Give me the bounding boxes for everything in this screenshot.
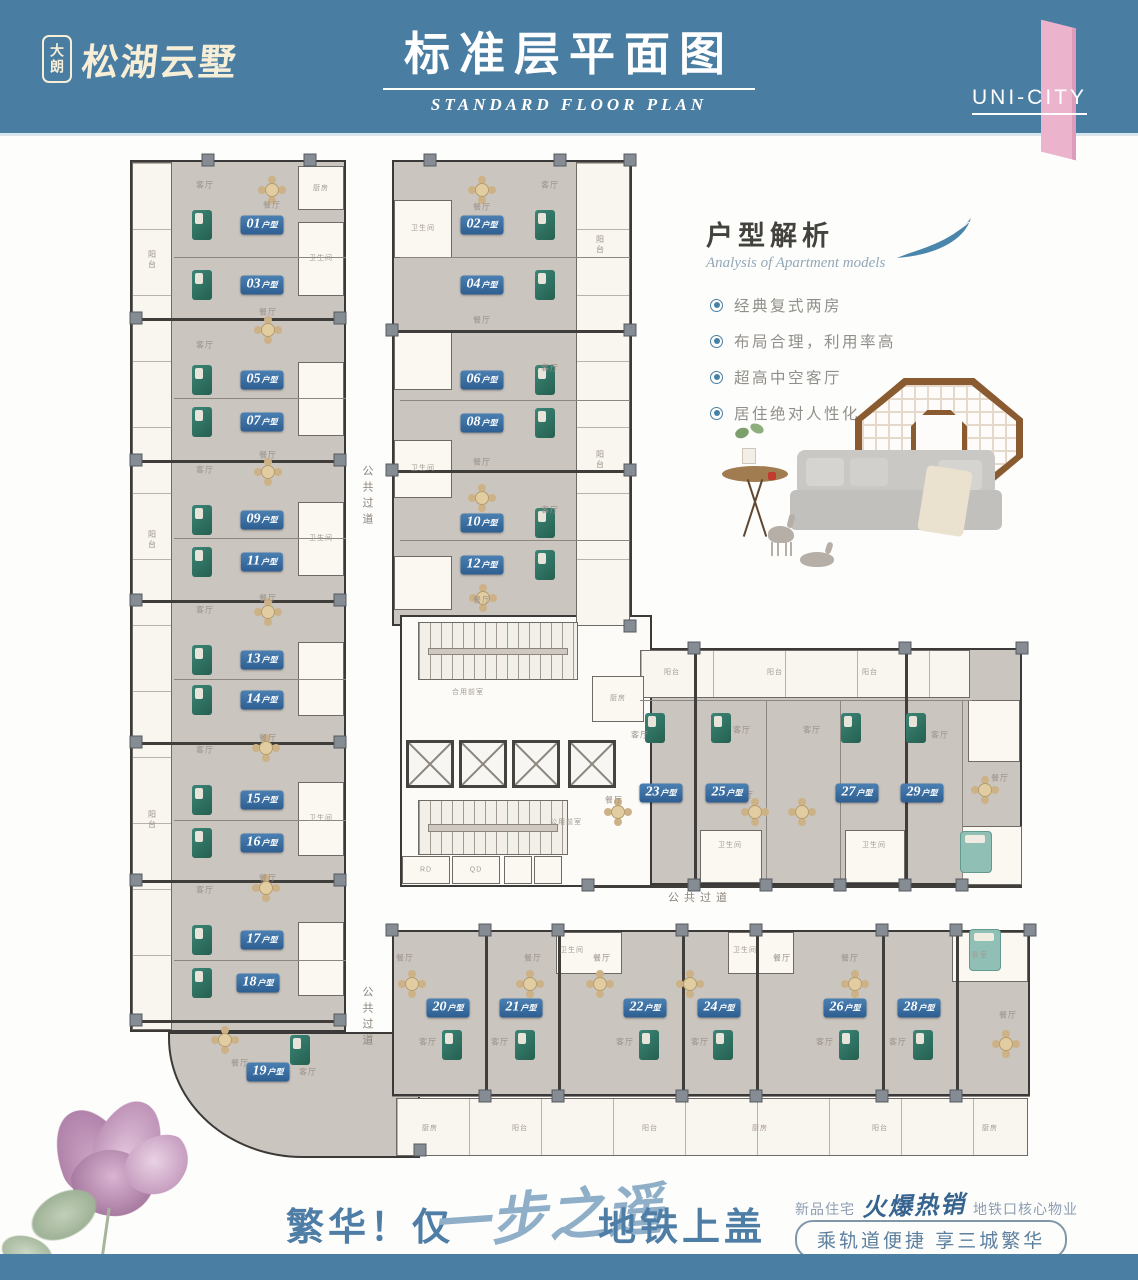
bullet-ring-icon: [710, 407, 723, 420]
wall: [174, 679, 346, 680]
elevator: [512, 740, 560, 788]
structural-pillar: [479, 924, 492, 937]
analysis-title: 户型解析: [706, 214, 885, 253]
unit-label: 16户型: [241, 834, 284, 853]
dining-table-icon: [748, 805, 762, 819]
unit-label: 13户型: [241, 651, 284, 670]
room-label: 卫生间: [309, 813, 333, 823]
dining-table-icon: [795, 805, 809, 819]
room-label: 公共过道: [668, 889, 732, 905]
unit-label: 15户型: [241, 791, 284, 810]
bullet-text: 超高中空客厅: [734, 366, 842, 388]
structural-pillar: [688, 642, 701, 655]
structural-pillar: [386, 464, 399, 477]
unit-label: 28户型: [898, 999, 941, 1018]
room-label: 客厅: [196, 745, 214, 756]
room-label: 客厅: [419, 1037, 437, 1048]
bed-icon: [960, 831, 992, 873]
room-label: 厨房: [313, 183, 329, 193]
dining-table-icon: [999, 1037, 1013, 1051]
unit-label: 05户型: [241, 371, 284, 390]
unit-label: 27户型: [836, 784, 879, 803]
room-label: 餐厅: [263, 200, 281, 211]
service-room: [534, 856, 562, 884]
stair-rail: [428, 824, 558, 831]
unit-label: 09户型: [241, 511, 284, 530]
dining-table-icon: [261, 465, 275, 479]
stair-rail: [428, 648, 567, 656]
room-label: 阳台: [872, 1123, 888, 1133]
room-label: 阳台: [767, 667, 783, 677]
room-label: 餐厅: [259, 307, 277, 318]
room-label: 客厅: [631, 730, 649, 741]
structural-pillar: [899, 642, 912, 655]
slogan-left: 繁华！仅: [286, 1196, 454, 1251]
wall: [174, 960, 346, 961]
elevator: [406, 740, 454, 788]
sofa-icon: [192, 925, 212, 955]
sofa-icon: [192, 547, 212, 577]
unit-label: 06户型: [461, 371, 504, 390]
structural-pillar: [750, 924, 763, 937]
room-label: 客厅: [196, 885, 214, 896]
sofa-icon: [192, 365, 212, 395]
structural-pillar: [424, 154, 437, 167]
promo-line: 新品住宅 火爆热销 地铁口核心物业: [795, 1186, 1078, 1221]
bullet-ring-icon: [710, 299, 723, 312]
structural-pillar: [334, 736, 347, 749]
room-label: 卫生间: [718, 840, 742, 850]
room-label: 卫生间: [560, 945, 584, 955]
wall: [694, 648, 697, 885]
room-label: 公共过道: [359, 986, 375, 1050]
room-label: 厨房: [610, 693, 626, 703]
room-label: 客厅: [816, 1037, 834, 1048]
room-label: 餐厅: [999, 1010, 1017, 1021]
wall: [174, 398, 346, 399]
structural-pillar: [130, 594, 143, 607]
room-label: 卫生间: [309, 533, 333, 543]
structural-pillar: [750, 1090, 763, 1103]
room-label: 卫生间: [411, 463, 435, 473]
room-label: 餐厅: [524, 953, 542, 964]
wall: [682, 930, 685, 1096]
structural-pillar: [624, 324, 637, 337]
sofa-icon: [535, 408, 555, 438]
dining-table-icon: [683, 977, 697, 991]
room-label: 客厅: [196, 465, 214, 476]
sofa-icon: [639, 1030, 659, 1060]
sofa-icon: [192, 505, 212, 535]
unit-label: 23户型: [640, 784, 683, 803]
room-label: 餐厅: [593, 953, 611, 964]
service-room: [700, 830, 762, 883]
room-label: 客厅: [616, 1037, 634, 1048]
room-label: 餐厅: [473, 202, 491, 213]
unit-label: 14户型: [241, 691, 284, 710]
room-label: 阳台: [595, 450, 606, 470]
room-label: 厨房: [752, 1123, 768, 1133]
structural-pillar: [624, 620, 637, 633]
structural-pillar: [334, 594, 347, 607]
room-label: 餐厅: [259, 873, 277, 884]
slogan-right: 地铁上盖: [598, 1196, 766, 1251]
structural-pillar: [130, 736, 143, 749]
unit-label: 08户型: [461, 414, 504, 433]
dining-table-icon: [848, 977, 862, 991]
room-label: 阳台: [642, 1123, 658, 1133]
room-label: 客厅: [889, 1037, 907, 1048]
sofa-icon: [906, 713, 926, 743]
unit-label: 19户型: [247, 1063, 290, 1082]
dining-table-icon: [405, 977, 419, 991]
room-label: 客厅: [299, 1067, 317, 1078]
wall: [132, 880, 346, 883]
room-label: 阳台: [147, 250, 158, 270]
room-label: 卫生间: [733, 945, 757, 955]
wall: [132, 318, 346, 321]
structural-pillar: [676, 1090, 689, 1103]
sofa-icon: [192, 270, 212, 300]
analysis-bullet: 经典复式两房: [710, 294, 976, 316]
sofa-icon: [839, 1030, 859, 1060]
staircase: [418, 800, 568, 855]
room-label: 卫生间: [411, 223, 435, 233]
structural-pillar: [130, 454, 143, 467]
structural-pillar: [1024, 924, 1037, 937]
structural-pillar: [956, 879, 969, 892]
wall: [132, 742, 346, 745]
room-label: 卧室: [972, 950, 988, 960]
structural-pillar: [334, 874, 347, 887]
bottom-bar: [0, 1254, 1138, 1280]
structural-pillar: [552, 1090, 565, 1103]
structural-pillar: [554, 154, 567, 167]
sofa-icon: [711, 713, 731, 743]
room-label: 餐厅: [773, 953, 791, 964]
analysis-subtitle: Analysis of Apartment models: [706, 255, 885, 272]
structural-pillar: [899, 879, 912, 892]
room-label: 客厅: [733, 725, 751, 736]
room-label: 客厅: [541, 180, 559, 191]
dining-table-icon: [523, 977, 537, 991]
wall: [400, 540, 630, 541]
service-room: [298, 922, 344, 996]
room-label: 客厅: [931, 730, 949, 741]
structural-pillar: [950, 1090, 963, 1103]
wall: [132, 1020, 346, 1023]
wall: [956, 930, 959, 1096]
room-label: RD: [420, 867, 432, 874]
room-label: 阳台: [595, 235, 606, 255]
sofa-icon: [535, 270, 555, 300]
room-label: 客厅: [691, 1037, 709, 1048]
structural-pillar: [876, 924, 889, 937]
unit-label: 25户型: [706, 784, 749, 803]
wall: [485, 930, 488, 1096]
dining-table-icon: [218, 1033, 232, 1047]
structural-pillar: [582, 879, 595, 892]
unit-label: 11户型: [241, 553, 283, 572]
unit-label: 22户型: [624, 999, 667, 1018]
sofa-icon: [535, 210, 555, 240]
bullet-text: 居住绝对人性化: [734, 402, 860, 424]
analysis-bullet: 布局合理，利用率高: [710, 330, 976, 352]
structural-pillar: [414, 1144, 427, 1157]
room-label: 公共过道: [359, 465, 375, 529]
wall: [132, 460, 346, 463]
structural-pillar: [130, 312, 143, 325]
structural-pillar: [1016, 642, 1029, 655]
service-room: [394, 556, 452, 610]
wall: [640, 700, 972, 701]
sofa-icon: [192, 685, 212, 715]
structural-pillar: [624, 464, 637, 477]
sofa-icon: [713, 1030, 733, 1060]
service-room: [640, 650, 970, 698]
wall: [905, 648, 908, 885]
sofa-icon: [192, 968, 212, 998]
unit-label: 20户型: [427, 999, 470, 1018]
unit-label: 18户型: [237, 974, 280, 993]
sofa-icon: [192, 785, 212, 815]
promo-prefix: 新品住宅: [795, 1199, 855, 1219]
wall: [132, 600, 346, 603]
unit-label: 21户型: [500, 999, 543, 1018]
sofa-icon: [913, 1030, 933, 1060]
room-label: 餐厅: [605, 795, 623, 806]
sofa-icon: [290, 1035, 310, 1065]
unit-label: 10户型: [461, 514, 504, 533]
bullet-ring-icon: [710, 335, 723, 348]
service-room: [576, 162, 630, 626]
sofa-icon: [192, 828, 212, 858]
unit-label: 29户型: [901, 784, 944, 803]
dining-table-icon: [265, 183, 279, 197]
room-label: 卫生间: [862, 840, 886, 850]
service-room: [396, 1098, 1028, 1156]
deer-figurine: [768, 526, 794, 543]
feather-icon: [891, 214, 975, 265]
room-label: 阳台: [512, 1123, 528, 1133]
service-room: [968, 700, 1020, 762]
room-label: 客厅: [541, 363, 559, 374]
room-label: 合用前室: [452, 687, 484, 697]
sofa-icon: [515, 1030, 535, 1060]
unit-label: 02户型: [461, 216, 504, 235]
side-table: [722, 466, 788, 482]
unit-label: 01户型: [241, 216, 284, 235]
structural-pillar: [334, 312, 347, 325]
sofa-icon: [192, 407, 212, 437]
room-label: 阳台: [664, 667, 680, 677]
sofa-icon: [192, 645, 212, 675]
room-label: 客厅: [196, 605, 214, 616]
elevator: [459, 740, 507, 788]
room-label: 餐厅: [473, 315, 491, 326]
room-label: 客厅: [541, 505, 559, 516]
structural-pillar: [130, 1014, 143, 1027]
room-label: 客厅: [196, 180, 214, 191]
service-room: [394, 332, 452, 390]
wall: [400, 400, 630, 401]
dining-table-icon: [593, 977, 607, 991]
dining-table-icon: [261, 323, 275, 337]
unit-label: 12户型: [461, 556, 504, 575]
structural-pillar: [950, 924, 963, 937]
structural-pillar: [386, 924, 399, 937]
promo-suffix: 地铁口核心物业: [973, 1199, 1078, 1219]
unit-label: 24户型: [698, 999, 741, 1018]
unit-label: 17户型: [241, 931, 284, 950]
room-label: 餐厅: [473, 457, 491, 468]
staircase: [418, 622, 578, 680]
room-label: 客厅: [803, 725, 821, 736]
room-label: 餐厅: [259, 733, 277, 744]
room-label: 厨房: [422, 1123, 438, 1133]
structural-pillar: [202, 154, 215, 167]
structural-pillar: [130, 874, 143, 887]
room-label: 客厅: [196, 340, 214, 351]
service-room: [845, 830, 905, 883]
floor-plan: 公共过道公共过道公共过道合用前室公用前室RDQD客厅餐厅餐厅客厅客厅餐厅客厅餐厅…: [0, 0, 1138, 1280]
structural-pillar: [624, 154, 637, 167]
uni-city-tag: UNI-CITY: [972, 86, 1087, 115]
room-label: QD: [470, 867, 483, 874]
structural-pillar: [334, 454, 347, 467]
structural-pillar: [834, 879, 847, 892]
room-label: 阳台: [862, 667, 878, 677]
red-cup: [768, 472, 776, 480]
room-label: 客厅: [491, 1037, 509, 1048]
sofa-icon: [841, 713, 861, 743]
room-label: 餐厅: [259, 450, 277, 461]
room-label: 卫生间: [309, 253, 333, 263]
structural-pillar: [760, 879, 773, 892]
unit-label: 04户型: [461, 276, 504, 295]
structural-pillar: [304, 154, 317, 167]
wall: [392, 330, 632, 333]
elevator: [568, 740, 616, 788]
dining-table-icon: [475, 491, 489, 505]
room-label: 餐厅: [991, 773, 1009, 784]
structural-pillar: [552, 924, 565, 937]
dining-table-icon: [978, 783, 992, 797]
sofa-icon: [535, 550, 555, 580]
room-label: 餐厅: [841, 953, 859, 964]
room-label: 公用前室: [550, 817, 582, 827]
service-room: [504, 856, 532, 884]
dining-table-icon: [475, 183, 489, 197]
room-label: 餐厅: [473, 595, 491, 606]
unit-label: 07户型: [241, 413, 284, 432]
dining-table-icon: [611, 805, 625, 819]
structural-pillar: [876, 1090, 889, 1103]
service-room: [298, 362, 344, 436]
bullet-text: 经典复式两房: [734, 294, 842, 316]
room-label: 餐厅: [396, 953, 414, 964]
wall: [400, 257, 630, 258]
wall: [766, 700, 767, 885]
structural-pillar: [479, 1090, 492, 1103]
structural-pillar: [386, 324, 399, 337]
room-label: 厨房: [982, 1123, 998, 1133]
sofa-icon: [442, 1030, 462, 1060]
plant-pot: [742, 448, 756, 464]
promo-script: 火爆热销: [861, 1184, 966, 1223]
room-label: 餐厅: [259, 593, 277, 604]
deer-figurine: [800, 552, 834, 567]
unit-label: 26户型: [824, 999, 867, 1018]
bullet-ring-icon: [710, 371, 723, 384]
structural-pillar: [676, 924, 689, 937]
unit-label: 03户型: [241, 276, 284, 295]
sofa-icon: [192, 210, 212, 240]
room-label: 阳台: [147, 530, 158, 550]
bullet-text: 布局合理，利用率高: [734, 330, 896, 352]
structural-pillar: [334, 1014, 347, 1027]
room-label: 阳台: [147, 810, 158, 830]
wall: [882, 930, 885, 1096]
dining-table-icon: [261, 605, 275, 619]
